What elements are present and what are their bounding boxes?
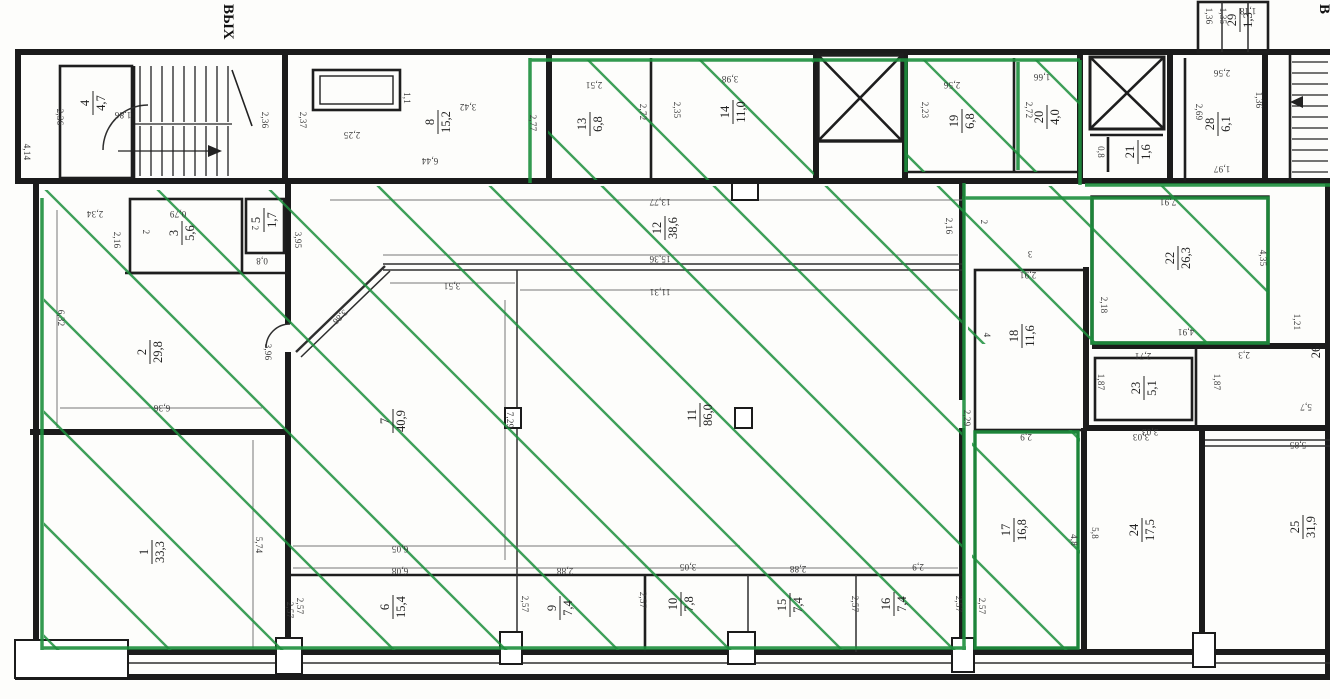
dim-61: 5,85 xyxy=(1289,440,1306,450)
dim-47: 2 xyxy=(979,220,989,225)
dim-0: 4,14 xyxy=(22,144,32,161)
dim-32: 3,51 xyxy=(444,281,461,291)
dim-68: 2,57 xyxy=(295,598,305,615)
dim-5: 1,1 xyxy=(402,92,412,104)
dim-40: 2 xyxy=(250,226,260,231)
room-number: 21 xyxy=(1123,146,1137,159)
room-number: 5 xyxy=(249,217,263,223)
floor-plan-page: ВЫХ В 133,3229,835,644,751,7615,4740,981… xyxy=(0,0,1330,699)
room-number: 23 xyxy=(1129,382,1143,395)
dim-24: 1,35 xyxy=(1218,8,1228,25)
dim-3: 2,36 xyxy=(260,112,270,129)
dim-15: 2,23 xyxy=(920,102,930,119)
room-number: 11 xyxy=(685,409,699,421)
room-number: 26 xyxy=(1309,346,1323,359)
room-number: 16 xyxy=(879,598,893,611)
room-area: 29,8 xyxy=(151,341,165,363)
dim-20: 2,69 xyxy=(1194,104,1204,121)
dim-65: 5,8 xyxy=(1090,527,1100,539)
room-label-1: 133,3 xyxy=(137,540,167,564)
dim-29: 2,16 xyxy=(944,218,954,235)
exit-label-left: ВЫХ xyxy=(220,4,236,40)
room-labels: 133,3229,835,644,751,7615,4740,9815,297,… xyxy=(78,8,1323,620)
room-label-24: 2417,5 xyxy=(1127,518,1157,542)
room-label-14: 1411,0 xyxy=(718,100,748,124)
room-label-7: 740,9 xyxy=(378,409,408,433)
room-label-17: 1716,8 xyxy=(999,518,1029,542)
room-area: 33,3 xyxy=(153,541,167,563)
room-label-15: 157,4 xyxy=(775,593,805,617)
room-area: 4,0 xyxy=(1048,109,1062,125)
dim-45: 3 xyxy=(1027,249,1032,259)
dim-28: 11,31 xyxy=(650,287,671,297)
dim-18: 0,8 xyxy=(1096,146,1106,158)
room-number: 24 xyxy=(1127,523,1141,536)
room-number: 19 xyxy=(947,115,961,128)
room-number: 25 xyxy=(1288,521,1302,534)
dim-26: 13,77 xyxy=(649,197,671,207)
dim-43: 5,74 xyxy=(254,537,264,554)
dim-49: 7,91 xyxy=(1160,197,1177,207)
dim-25: 1,18 xyxy=(1239,6,1256,16)
room-label-2: 229,8 xyxy=(135,340,165,364)
room-number: 4 xyxy=(78,99,92,106)
room-number: 3 xyxy=(167,230,181,236)
dim-48: 4 xyxy=(982,333,992,338)
room-number: 6 xyxy=(378,604,392,610)
dim-54: 1,87 xyxy=(1096,374,1106,391)
dim-66: 6,05 xyxy=(391,544,408,554)
dim-58: 2,3 xyxy=(1238,350,1250,360)
dim-22: 1,97 xyxy=(1213,164,1230,174)
room-area: 6,8 xyxy=(963,113,977,129)
room-area: 5,6 xyxy=(183,225,197,241)
exit-label-right: В xyxy=(1316,4,1330,14)
dim-36: 2,16 xyxy=(112,232,122,249)
dim-35: 2,34 xyxy=(86,209,103,219)
room-number: 8 xyxy=(423,119,437,125)
room-label-28: 286,1 xyxy=(1203,112,1233,136)
room-area: 16,8 xyxy=(1015,519,1029,541)
dim-52: 4,91 xyxy=(1178,327,1195,337)
dim-62: 2,9 xyxy=(1020,432,1032,442)
dim-14: 2,56 xyxy=(943,80,960,90)
dim-46: 2,91 xyxy=(1020,270,1037,280)
room-area: 6,1 xyxy=(1219,116,1233,132)
room-number: 17 xyxy=(999,524,1013,537)
dim-17: 2,72 xyxy=(1024,102,1034,119)
dim-12: 3,98 xyxy=(721,74,738,84)
room-area: 1,7 xyxy=(265,212,279,228)
room-label-21: 211,6 xyxy=(1123,140,1153,164)
room-area: 31,9 xyxy=(1304,516,1318,538)
room-number: 1 xyxy=(137,549,151,555)
dim-73: 2,88 xyxy=(789,564,806,574)
dim-51: 2,18 xyxy=(1099,297,1109,314)
room-area: 4,7 xyxy=(94,95,108,111)
room-label-26: 26 xyxy=(1309,346,1323,359)
dim-71: 3,05 xyxy=(679,562,696,572)
dim-34: 3,96 xyxy=(263,344,273,361)
room-number: 2 xyxy=(135,349,149,355)
dim-39: 0,8 xyxy=(256,256,268,266)
dim-67: 6,08 xyxy=(391,566,408,576)
room-area: 86,0 xyxy=(701,404,715,426)
room-area: 5,1 xyxy=(1145,380,1159,396)
room-label-19: 196,8 xyxy=(947,109,977,133)
room-area: 7,4 xyxy=(791,596,805,612)
dim-21: 1,36 xyxy=(1254,92,1264,109)
dim-4: 2,37 xyxy=(298,112,308,129)
room-label-18: 1811,6 xyxy=(1007,324,1037,348)
dim-57: 2,29 xyxy=(962,410,972,427)
dim-63: 4,8 xyxy=(1069,534,1079,546)
dim-6: 2,25 xyxy=(343,130,360,140)
dim-64: 3,03 xyxy=(1132,432,1149,442)
room-label-25: 2531,9 xyxy=(1288,515,1318,539)
dim-37: 2 xyxy=(141,230,151,235)
dim-19: 2,56 xyxy=(1213,68,1230,78)
room-area: 11,6 xyxy=(1023,325,1037,346)
room-label-16: 167,4 xyxy=(879,592,909,616)
room-area: 7,8 xyxy=(682,596,696,612)
dim-10: 2,51 xyxy=(586,80,603,90)
dim-38: 0,79 xyxy=(169,209,186,219)
highlight-hatch xyxy=(0,0,1330,699)
room-label-11: 1186,0 xyxy=(685,403,715,427)
room-area: 40,9 xyxy=(394,410,408,432)
room-number: 10 xyxy=(666,598,680,611)
room-label-20: 204,0 xyxy=(1032,105,1062,129)
room-area: 15,4 xyxy=(394,595,408,618)
dim-31: 3,86 xyxy=(331,308,350,327)
dim-8: 2,77 xyxy=(528,115,538,132)
room-area: 26,3 xyxy=(1179,247,1193,269)
room-number: 22 xyxy=(1163,252,1177,265)
room-label-23: 235,1 xyxy=(1129,376,1159,400)
room-number: 12 xyxy=(650,222,664,235)
room-area: 6,8 xyxy=(591,116,605,132)
dim-41: 6,32 xyxy=(56,310,66,327)
dim-44: 2,57 xyxy=(285,602,295,619)
dim-55: 1,87 xyxy=(1212,374,1222,391)
room-area: 17,5 xyxy=(1143,519,1157,541)
dim-70: 2,57 xyxy=(520,596,530,613)
dim-77: 2,57 xyxy=(977,598,987,615)
room-label-10: 107,8 xyxy=(666,592,696,616)
room-label-13: 136,8 xyxy=(575,112,605,136)
dim-7: 3,42 xyxy=(460,102,477,112)
room-number: 9 xyxy=(545,605,559,611)
dim-1: 2,36 xyxy=(55,109,65,126)
room-label-6: 615,4 xyxy=(378,595,408,619)
dim-16: 1,66 xyxy=(1033,72,1050,82)
dim-60: 1,21 xyxy=(1292,314,1302,331)
dim-53: 2,71 xyxy=(1135,351,1152,361)
dim-75: 2,9 xyxy=(912,562,924,572)
stairs-top-left xyxy=(118,66,252,176)
dim-33: 7,29 xyxy=(505,412,515,429)
dim-50: 4,35 xyxy=(1258,250,1268,267)
dim-69: 2,88 xyxy=(556,566,573,576)
room-label-4: 44,7 xyxy=(78,91,108,115)
room-area: 7,4 xyxy=(561,599,575,615)
room-number: 14 xyxy=(718,105,732,118)
stairs-top-right xyxy=(1290,62,1328,172)
dim-27: 15,36 xyxy=(649,254,671,264)
dim-30: 3,95 xyxy=(293,232,303,249)
dim-76: 2,57 xyxy=(954,596,964,613)
room-label-22: 2226,3 xyxy=(1163,246,1193,270)
dim-9: 6,44 xyxy=(421,156,438,166)
room-number: 28 xyxy=(1203,118,1217,131)
room-label-12: 1238,6 xyxy=(650,216,680,240)
floor-plan-svg: ВЫХ В 133,3229,835,644,751,7615,4740,981… xyxy=(0,0,1330,699)
room-area: 38,6 xyxy=(666,217,680,239)
walls-inner xyxy=(60,2,1290,652)
room-number: 15 xyxy=(775,599,789,612)
room-number: 7 xyxy=(378,418,392,424)
room-label-8: 815,2 xyxy=(423,110,453,134)
room-area: 1,6 xyxy=(1139,144,1153,160)
dim-72: 2,57 xyxy=(638,592,648,609)
room-number: 13 xyxy=(575,118,589,131)
room-label-9: 97,4 xyxy=(545,596,575,620)
dim-11: 2,72 xyxy=(638,104,648,121)
dim-2: 1,86 xyxy=(114,110,131,120)
dim-59: 5,7 xyxy=(1300,402,1312,412)
dim-23: 1,36 xyxy=(1204,8,1214,25)
room-area: 15,2 xyxy=(439,111,453,133)
room-number: 18 xyxy=(1007,330,1021,343)
dimension-labels: 4,142,361,862,362,371,12,253,422,776,442… xyxy=(22,6,1312,619)
dim-74: 2,57 xyxy=(850,596,860,613)
dim-13: 2,35 xyxy=(672,102,682,119)
room-area: 7,4 xyxy=(895,595,909,611)
room-area: 11,0 xyxy=(734,101,748,122)
dim-42: 6,36 xyxy=(153,403,170,413)
